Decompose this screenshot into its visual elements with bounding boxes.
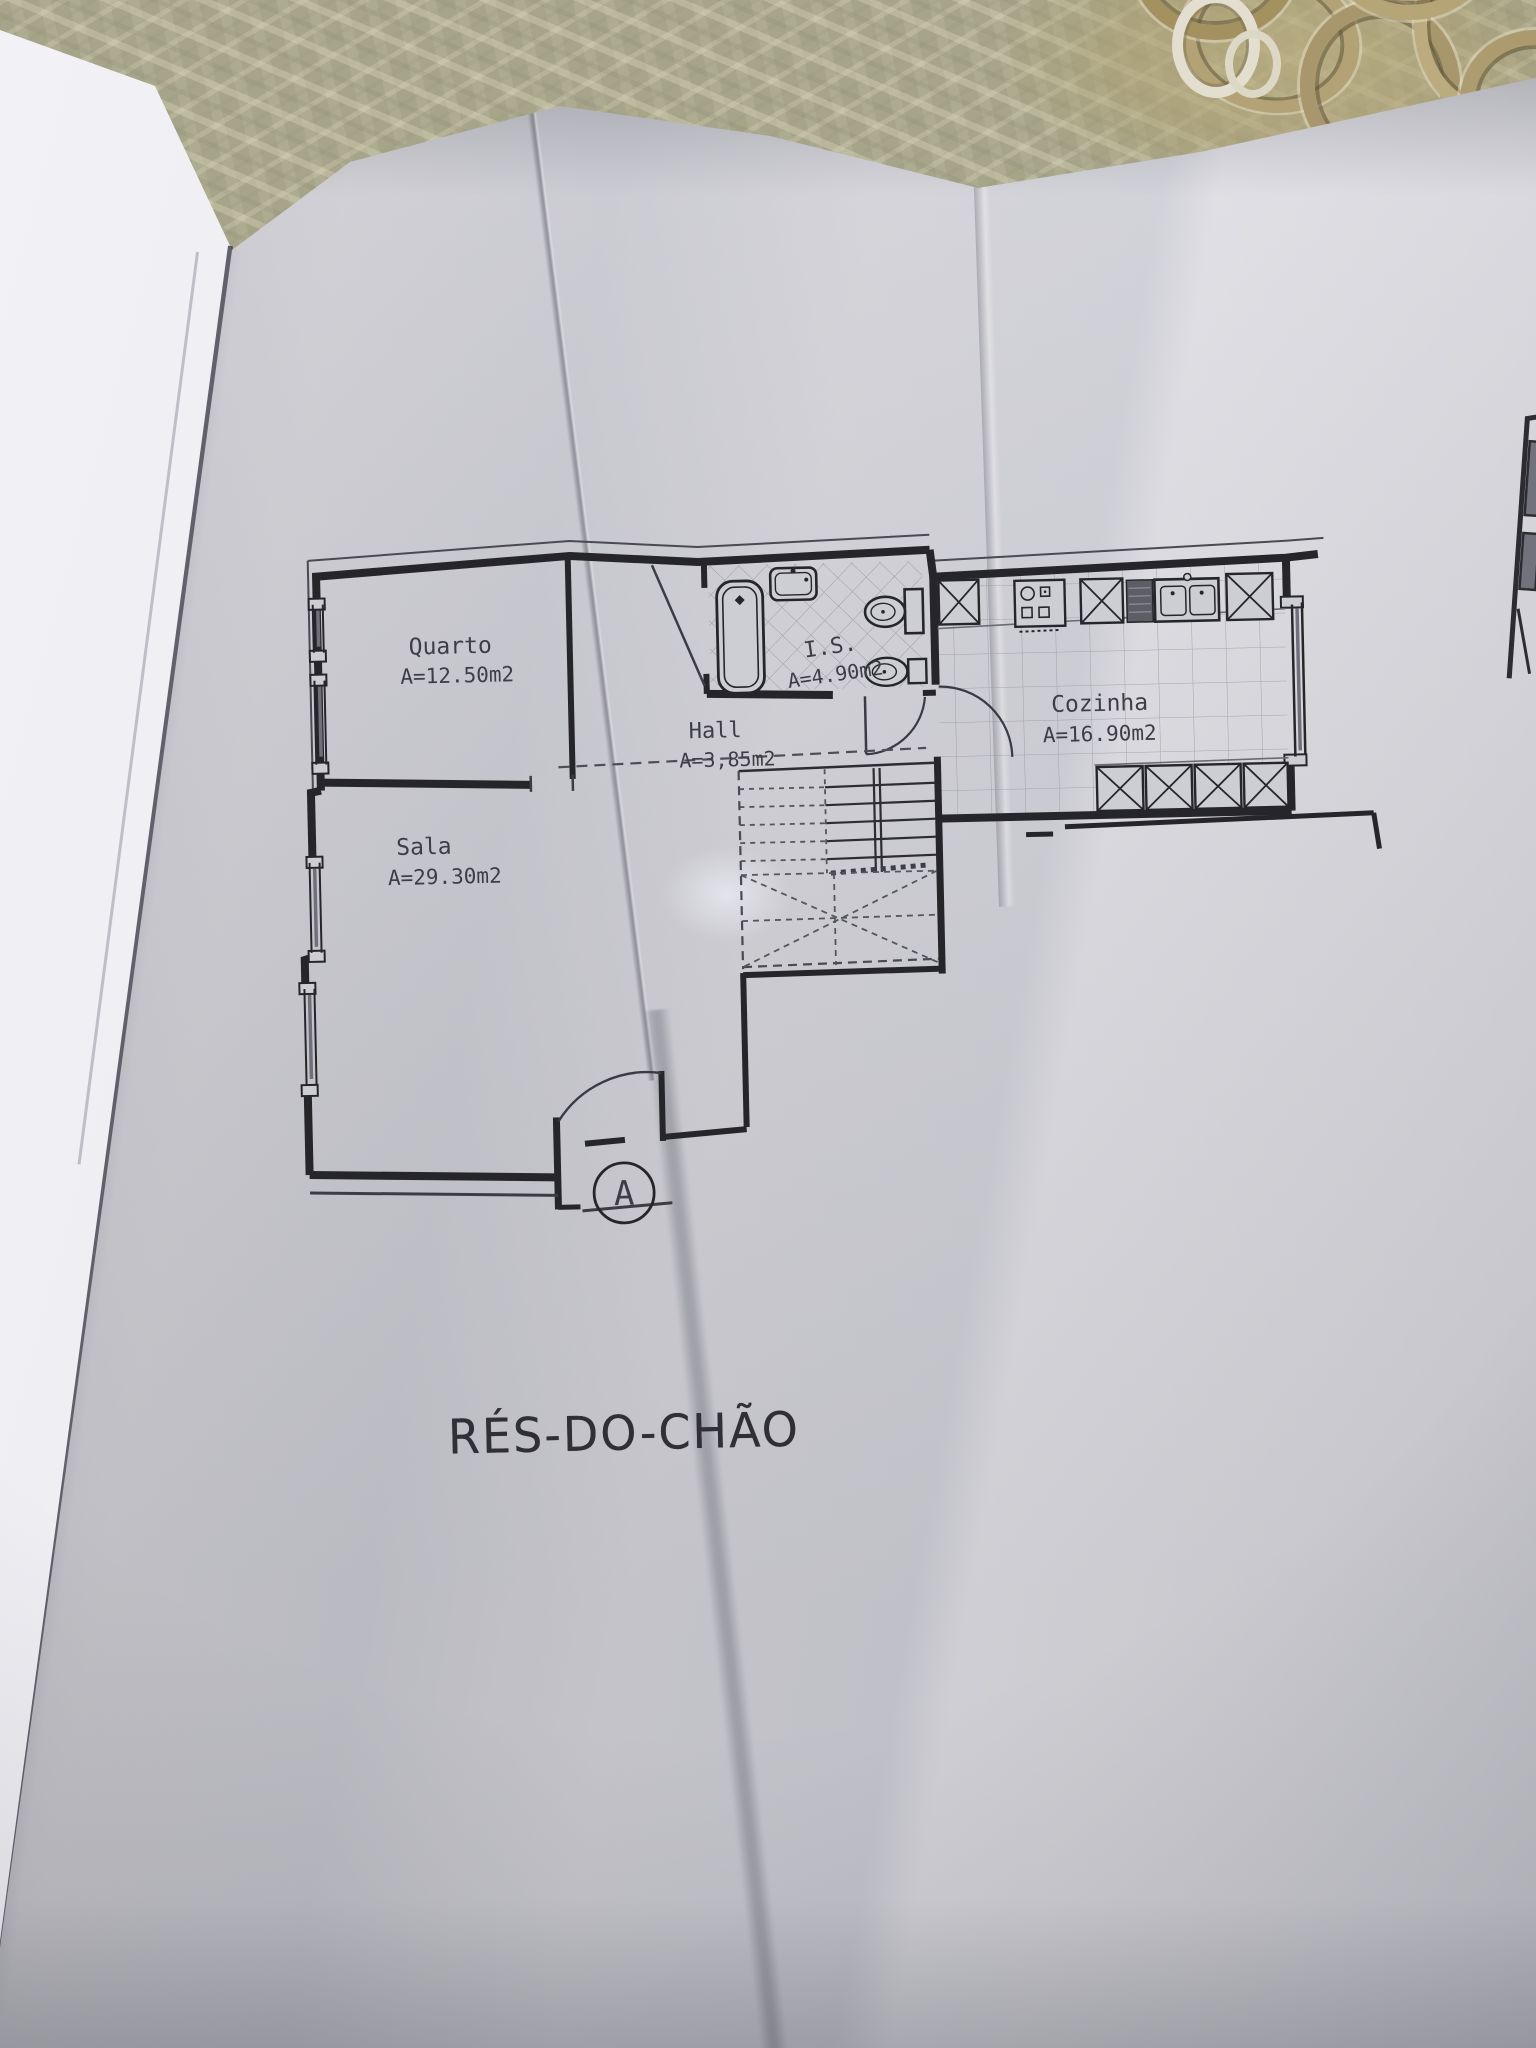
stair-dashed-diagonals <box>741 871 939 967</box>
cabinet-symbol <box>1146 765 1193 810</box>
cabinet-symbol <box>1195 764 1242 809</box>
plan-title: RÉS-DO-CHÃO <box>447 1401 800 1465</box>
double-sink-symbol <box>1154 573 1219 622</box>
bathroom-door-leaf <box>865 696 866 754</box>
stair-dashed-treads <box>739 769 827 875</box>
room-cozinha-area: A=16.90m2 <box>1043 721 1157 748</box>
cabinet-symbol <box>1097 766 1144 811</box>
room-sala-area: A=29.30m2 <box>388 864 502 891</box>
photo-of-floor-plan: Quarto A=12.50m2 I.S. A=4.90m2 Hall A=3,… <box>0 0 1536 2048</box>
room-sala-name: Sala <box>396 834 452 861</box>
paper-shading <box>0 1898 1536 2048</box>
stove-symbol <box>1014 580 1065 632</box>
cabinet-symbol <box>938 580 979 625</box>
bathroom-door-arc <box>865 697 926 754</box>
section-marker: A <box>593 1162 654 1223</box>
toilet-symbol <box>905 589 924 633</box>
room-hall-name: Hall <box>688 718 742 744</box>
cabinet-symbol <box>1080 578 1123 623</box>
dishwasher-symbol <box>1126 580 1153 623</box>
stair-direction-marks <box>831 865 929 873</box>
closet-door-leaf <box>652 564 705 687</box>
section-marker-letter: A <box>613 1174 634 1214</box>
stair-treads <box>825 767 937 873</box>
room-hall-area: A=3,85m2 <box>679 746 776 772</box>
room-quarto-area: A=12.50m2 <box>400 662 514 689</box>
doily-white-loop <box>1225 30 1281 98</box>
staircase <box>738 763 939 969</box>
adjacent-drawing-fragment <box>1482 412 1536 692</box>
bidet-symbol <box>908 659 927 683</box>
cabinet-symbol <box>1244 763 1289 808</box>
floor-plan-drawing: Quarto A=12.50m2 I.S. A=4.90m2 Hall A=3,… <box>271 506 1489 1333</box>
room-cozinha-name: Cozinha <box>1051 690 1149 718</box>
cabinet-symbol <box>1226 573 1273 620</box>
stair-dashed-outline <box>739 767 939 969</box>
room-quarto-name: Quarto <box>408 633 492 661</box>
entrance-door-arc <box>557 1072 662 1122</box>
